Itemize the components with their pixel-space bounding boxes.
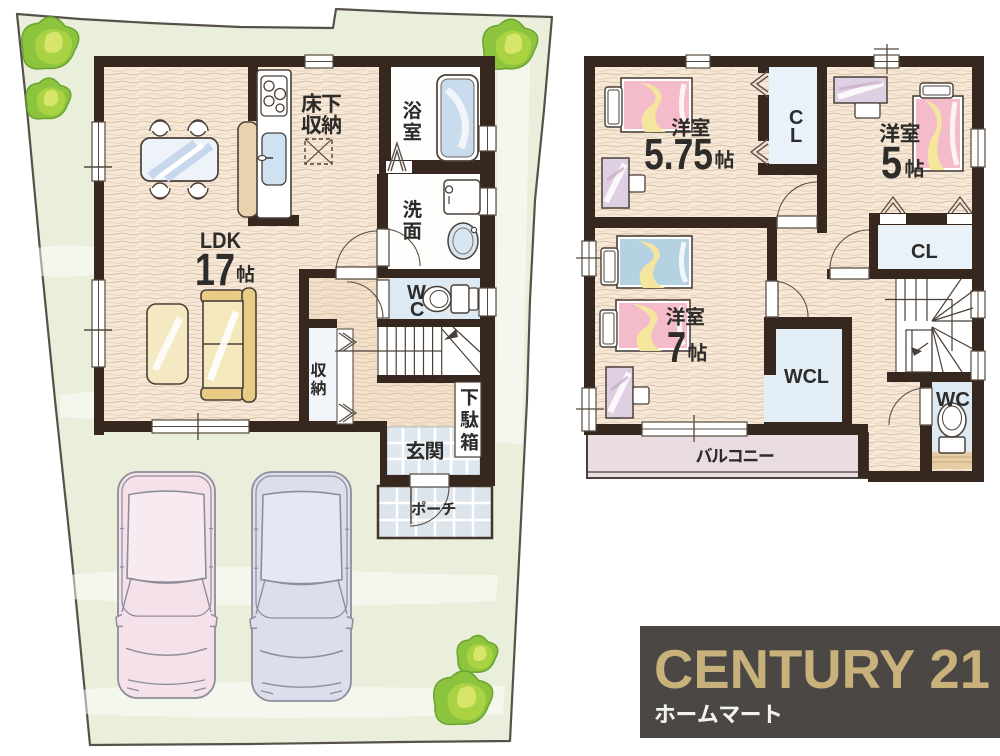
svg-text:WC: WC [936,389,970,411]
svg-text:5: 5 [881,137,902,188]
svg-text:L: L [790,125,802,147]
svg-text:CL: CL [911,241,938,263]
svg-text:CENTURY 21: CENTURY 21 [654,638,990,700]
svg-text:C: C [410,299,424,321]
svg-text:WCL: WCL [784,366,829,388]
svg-text:7: 7 [667,323,686,372]
svg-text:17: 17 [195,244,235,295]
svg-text:5.75: 5.75 [644,130,713,179]
